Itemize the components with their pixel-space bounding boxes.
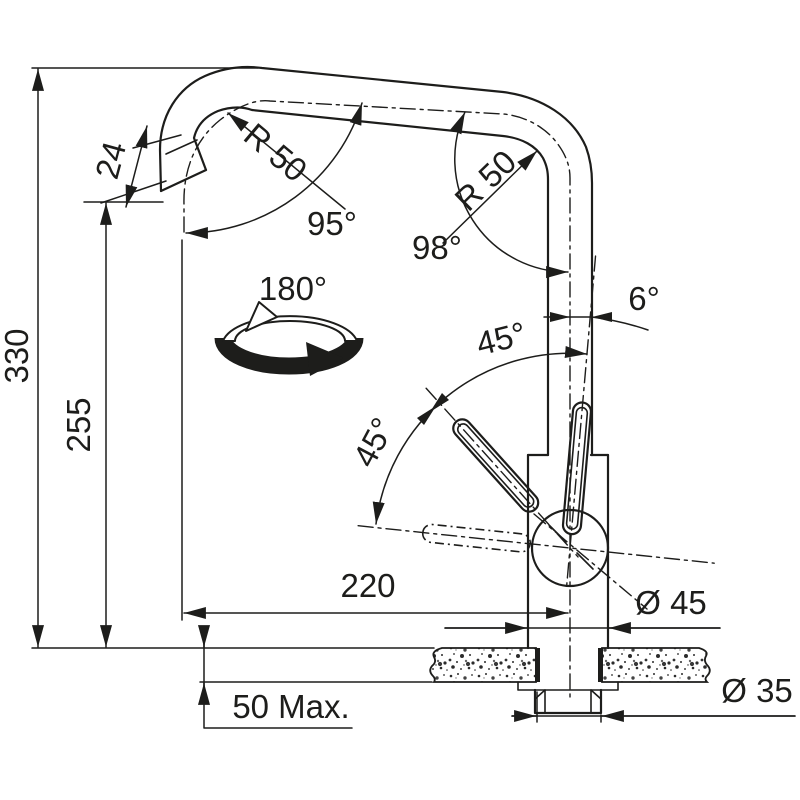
- mounting-washer: [518, 682, 618, 690]
- label-angle-45-upper: 45°: [472, 314, 529, 362]
- faucet-dimension-drawing-page: 330 255 24 R 50 95° R 50 98° 180° 6° 45°…: [0, 0, 800, 800]
- faucet-body: [528, 455, 608, 648]
- angle-arc-handle-swing: [376, 353, 587, 524]
- faucet-spout-outline: [160, 67, 592, 455]
- label-angle-95: 95°: [307, 205, 357, 242]
- hole-cut-edge-left: [535, 648, 540, 682]
- label-spout-reach: 220: [340, 567, 395, 604]
- label-swivel-180: 180°: [259, 270, 327, 307]
- label-hole-diameter: Ø 35: [721, 672, 793, 709]
- faucet-dimension-drawing: 330 255 24 R 50 95° R 50 98° 180° 6° 45°…: [0, 0, 800, 800]
- faucet-centerline: [184, 101, 570, 700]
- label-r50-right: R 50: [447, 143, 523, 218]
- swivel-symbol-180: [223, 302, 357, 376]
- label-counter-thickness: 50 Max.: [232, 688, 349, 725]
- dim-total-height: [32, 68, 258, 647]
- label-total-height: 330: [0, 328, 35, 383]
- label-body-diameter: Ø 45: [635, 584, 707, 621]
- mounting-nut: [535, 690, 601, 713]
- label-handle-tilt-6: 6°: [628, 280, 660, 317]
- label-outlet-height: 255: [60, 397, 97, 452]
- label-angle-98: 98°: [412, 229, 462, 266]
- dimension-labels: 330 255 24 R 50 95° R 50 98° 180° 6° 45°…: [0, 116, 793, 725]
- ball-joint: [532, 510, 647, 609]
- label-spout-tube-diameter: 24: [88, 138, 133, 183]
- handle-45-position: [419, 382, 584, 563]
- hole-cut-edge-right: [598, 648, 603, 682]
- label-r50-left: R 50: [237, 116, 314, 189]
